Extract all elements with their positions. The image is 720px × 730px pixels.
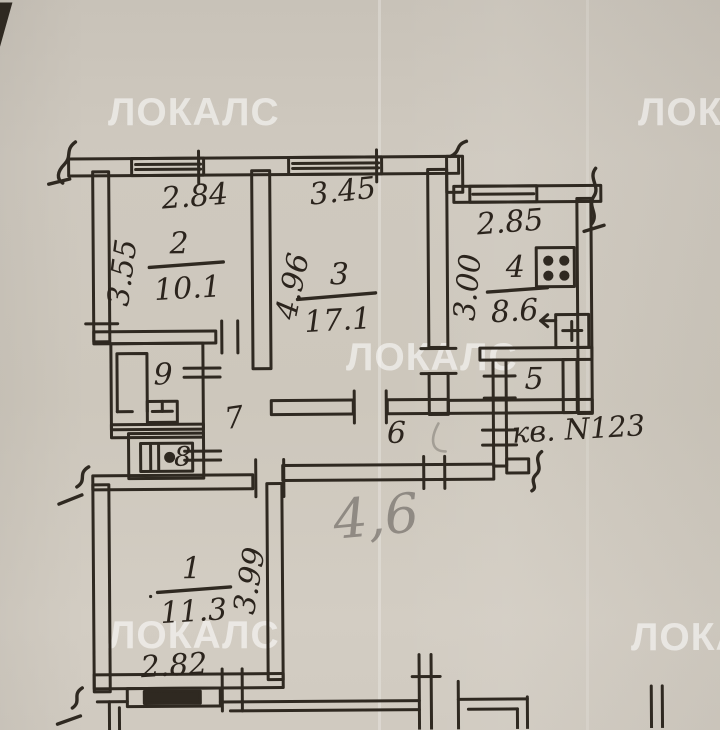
dim-room2-width: 2.84 bbox=[160, 180, 229, 215]
apartment-number-note: кв. N123 bbox=[511, 411, 646, 448]
dim-room2-depth: 3.55 bbox=[104, 238, 143, 308]
toilet-door-leaf bbox=[117, 353, 147, 411]
sink-icon bbox=[541, 314, 589, 347]
room9-number: 9 bbox=[153, 360, 172, 390]
room8-number: 8 bbox=[174, 444, 191, 471]
room4-area: 8.6 bbox=[490, 296, 539, 329]
stove-icon bbox=[536, 248, 574, 287]
room4-number: 4 bbox=[506, 253, 525, 283]
window-room1 bbox=[127, 688, 220, 707]
scan-corner-artifact bbox=[0, 2, 13, 54]
room3-number: 3 bbox=[330, 260, 349, 290]
room1-number: 1 bbox=[182, 554, 201, 584]
dim-room4-depth: 3.00 bbox=[450, 253, 486, 322]
window-room2 bbox=[132, 158, 204, 176]
window-kitchen bbox=[470, 186, 537, 202]
dim-room3-width: 3.45 bbox=[308, 173, 378, 210]
dim-room1-width: 2.82 bbox=[140, 649, 208, 683]
room2-area: 10.1 bbox=[153, 272, 221, 306]
floorplan-drawing bbox=[0, 0, 720, 730]
floorplan: 2.84 3.55 2 10.1 3.45 4.96 3 17.1 2.85 3… bbox=[0, 0, 720, 730]
room5-number: 5 bbox=[524, 365, 543, 395]
scanned-floorplan-page: ЛОКАЛС ЛОКАЛС ЛОКАЛС ЛОКАЛС ЛОКАЛС bbox=[0, 0, 720, 730]
pencil-stray-mark bbox=[433, 423, 446, 451]
dim-room4-width: 2.85 bbox=[476, 205, 545, 240]
room1-area: 11.3 bbox=[159, 595, 227, 629]
room3-area: 17.1 bbox=[303, 304, 371, 338]
toilet-icon bbox=[147, 401, 177, 422]
room6-number: 6 bbox=[387, 419, 406, 449]
room2-number: 2 bbox=[170, 229, 189, 259]
pencil-note: 4,6 bbox=[331, 486, 422, 548]
